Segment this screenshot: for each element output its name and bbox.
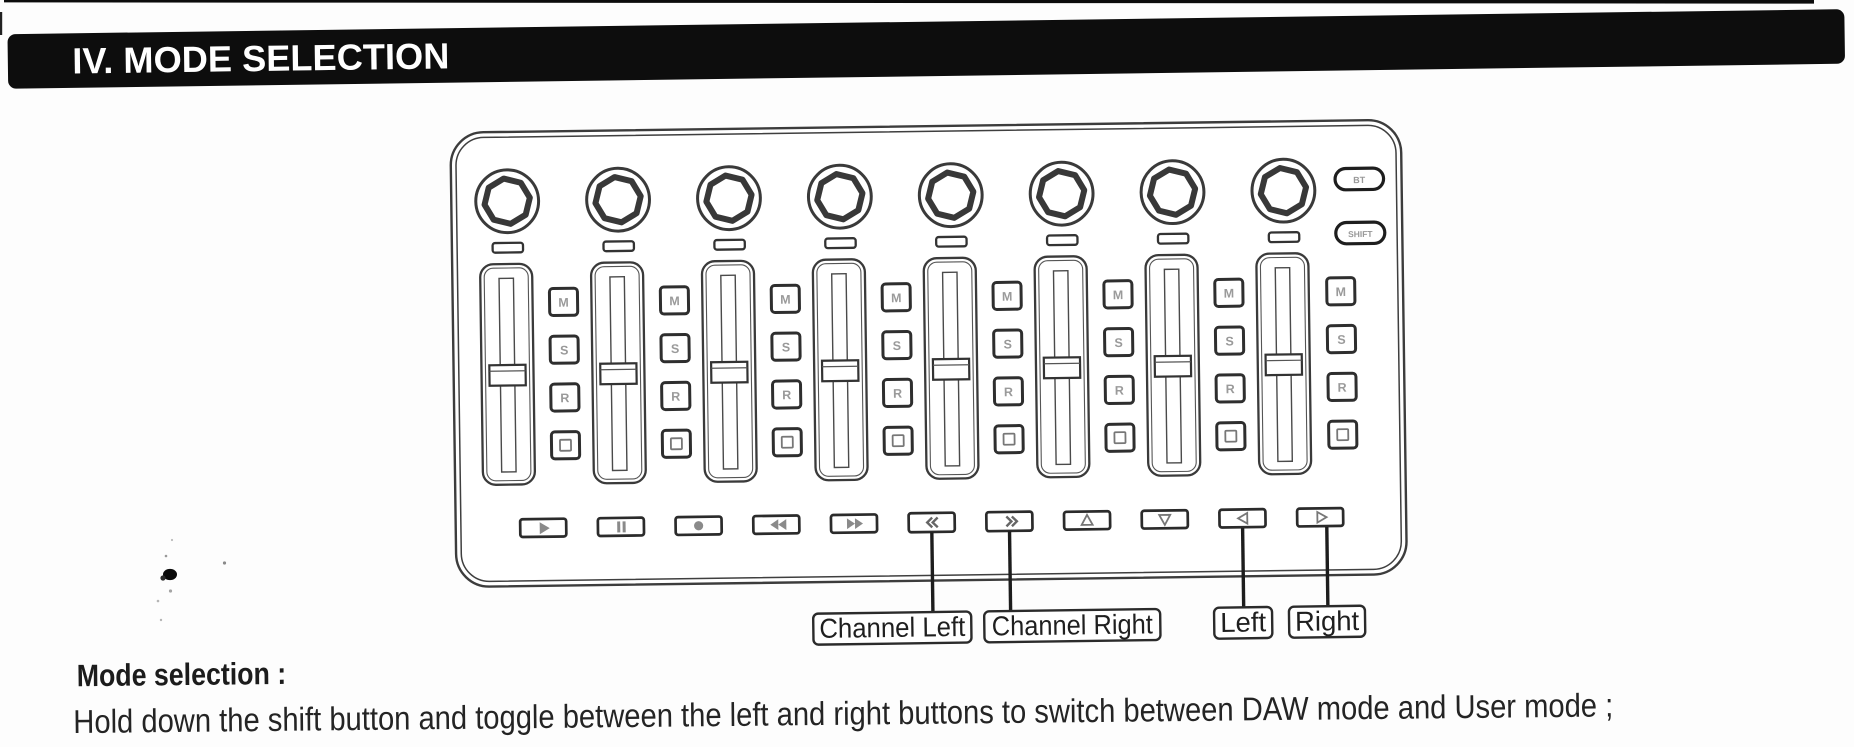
svg-text:Channel Right: Channel Right [992,608,1154,641]
svg-text:Hold down the shift button and: Hold down the shift button and toggle be… [73,686,1613,740]
svg-text:BT: BT [1353,175,1366,185]
svg-text:Left: Left [1220,606,1267,638]
svg-text:IV. MODE SELECTION: IV. MODE SELECTION [72,35,450,81]
svg-text:SHIFT: SHIFT [1348,229,1373,239]
svg-text:Right: Right [1295,605,1360,637]
svg-text:Mode selection :: Mode selection : [77,656,287,693]
svg-text:Channel Left: Channel Left [819,611,966,644]
